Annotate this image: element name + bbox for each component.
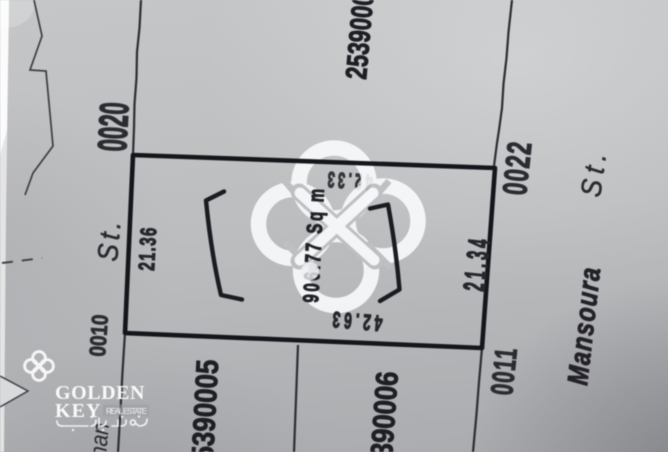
svg-text:REAL ESTATE: REAL ESTATE bbox=[106, 407, 148, 416]
svg-text:0020: 0020 bbox=[89, 101, 138, 152]
svg-text:KEY: KEY bbox=[55, 400, 103, 422]
svg-text:390006: 390006 bbox=[365, 370, 406, 452]
svg-text:0011: 0011 bbox=[484, 346, 524, 396]
svg-text:Mansoura: Mansoura bbox=[561, 266, 607, 387]
svg-text:St.: St. bbox=[574, 151, 612, 199]
svg-text:2539000: 2539000 bbox=[339, 0, 380, 81]
svg-text:21.36: 21.36 bbox=[135, 227, 162, 271]
svg-text:0022: 0022 bbox=[496, 140, 539, 197]
svg-text:21.34: 21.34 bbox=[459, 237, 497, 293]
svg-text:42.63: 42.63 bbox=[331, 307, 383, 336]
svg-text:0010: 0010 bbox=[85, 314, 113, 358]
svg-text:906.77 Sq m: 906.77 Sq m bbox=[298, 188, 328, 303]
svg-text:St.: St. bbox=[91, 220, 127, 263]
svg-text:5390005: 5390005 bbox=[186, 359, 226, 452]
